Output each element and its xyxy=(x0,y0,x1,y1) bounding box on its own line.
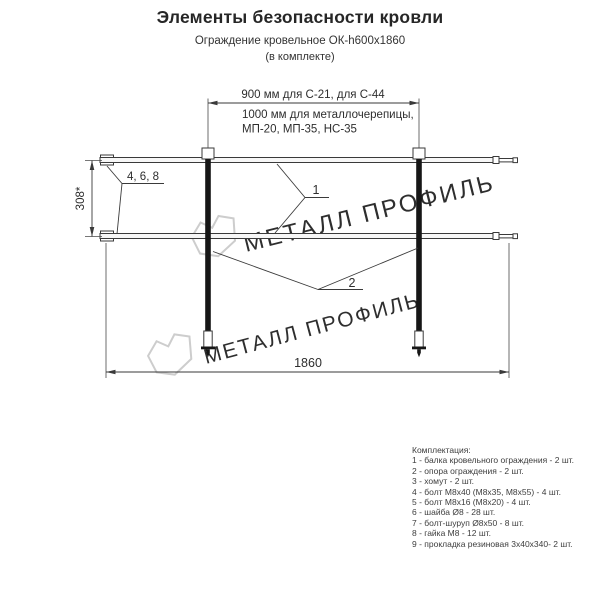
dim-label-1000-line1: 1000 мм для металлочерепицы, xyxy=(242,109,414,121)
callout-label-2: 2 xyxy=(349,276,356,290)
post-left xyxy=(201,148,215,357)
rail-top xyxy=(100,155,518,165)
page: Элементы безопасности кровли Ограждение … xyxy=(0,0,600,600)
brand-logo-outline-icon xyxy=(144,331,198,380)
parts-list-item: 5 - болт М8х16 (М8х20) - 4 шт. xyxy=(412,497,574,507)
dimension-top: 900 мм для С-21, для С-44 1000 мм для ме… xyxy=(208,89,419,148)
parts-list-heading: Комплектация: xyxy=(412,445,574,455)
post-right xyxy=(412,148,426,357)
parts-list-item: 9 - прокладка резиновая 3х40х340- 2 шт. xyxy=(412,539,574,549)
parts-list-item: 1 - балка кровельного ограждения - 2 шт. xyxy=(412,455,574,465)
parts-list-item: 3 - хомут - 2 шт. xyxy=(412,476,574,486)
dim-label-308: 308* xyxy=(75,186,87,210)
callout-post: 2 xyxy=(213,248,418,290)
parts-list: Комплектация: 1 - балка кровельного огра… xyxy=(412,445,574,549)
parts-list-item: 6 - шайба Ø8 - 28 шт. xyxy=(412,507,574,517)
parts-list-item: 7 - болт-шуруп Ø8х50 - 8 шт. xyxy=(412,518,574,528)
dimension-height: 308* xyxy=(75,161,102,237)
callout-fasteners: 4, 6, 8 xyxy=(107,166,164,234)
parts-list-item: 2 - опора ограждения - 2 шт. xyxy=(412,466,574,476)
dimension-width: 1860 xyxy=(106,243,509,378)
dim-label-1000-line2: МП-20, МП-35, НС-35 xyxy=(242,124,357,136)
watermark-bottom: МЕТАЛЛ ПРОФИЛЬ xyxy=(144,289,422,380)
dim-label-900: 900 мм для С-21, для С-44 xyxy=(241,89,385,101)
callout-label-1: 1 xyxy=(313,183,320,197)
watermark-center: МЕТАЛЛ ПРОФИЛЬ xyxy=(188,169,497,261)
parts-list-item: 4 - болт М8х40 (М8х35, М8х55) - 4 шт. xyxy=(412,487,574,497)
dim-label-1860: 1860 xyxy=(294,356,322,370)
watermark-text: МЕТАЛЛ ПРОФИЛЬ xyxy=(241,169,498,258)
parts-list-item: 8 - гайка М8 - 12 шт. xyxy=(412,528,574,538)
callout-label-468: 4, 6, 8 xyxy=(127,171,159,183)
